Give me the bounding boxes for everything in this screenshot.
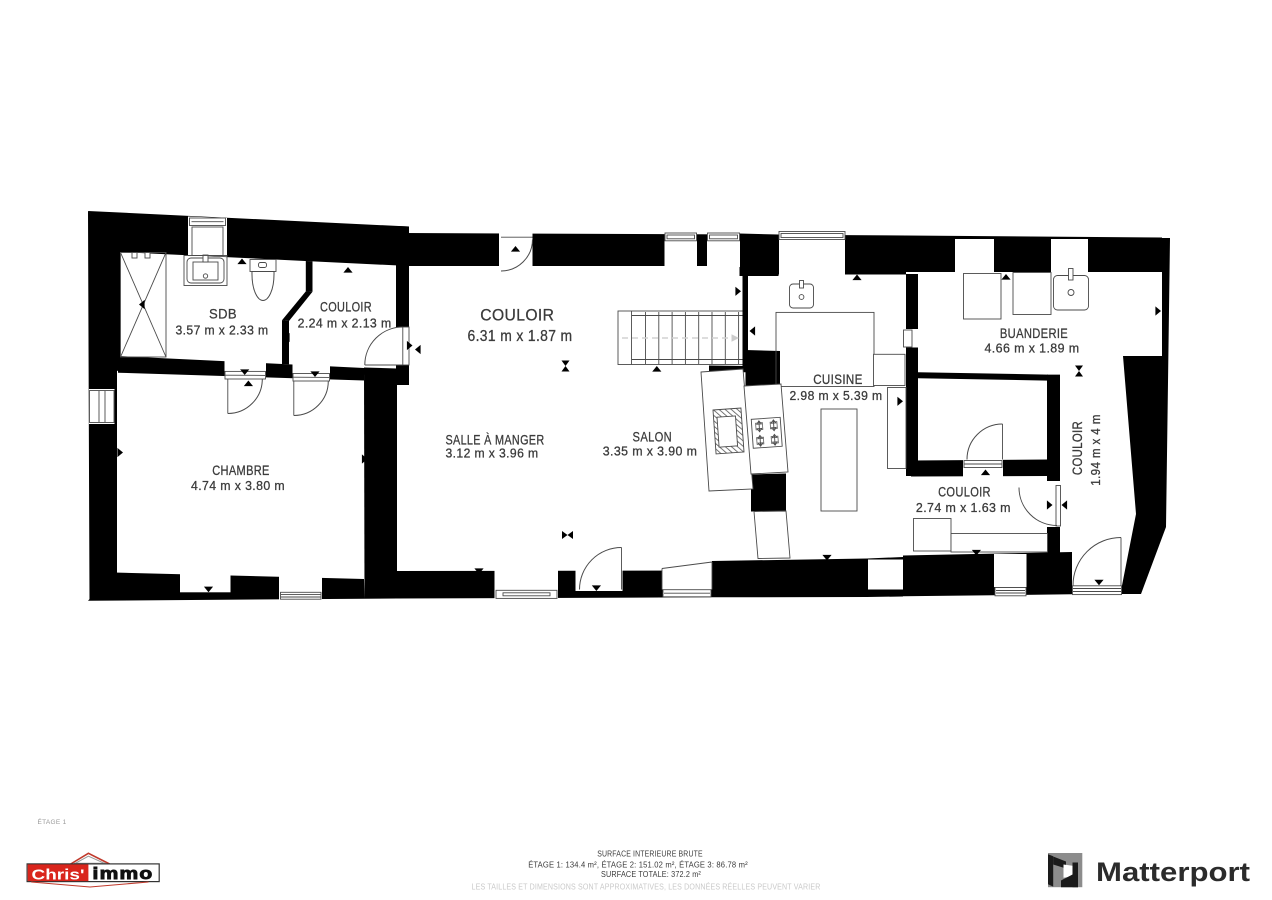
svg-text:COULOIR: COULOIR <box>938 485 991 500</box>
svg-text:ÉTAGE 1: ÉTAGE 1 <box>37 817 66 826</box>
svg-text:COULOIR: COULOIR <box>1070 421 1085 475</box>
svg-text:CHAMBRE: CHAMBRE <box>212 463 270 478</box>
svg-text:SALON: SALON <box>633 430 673 445</box>
svg-text:SDB: SDB <box>209 307 237 322</box>
svg-text:SALLE À MANGER: SALLE À MANGER <box>446 433 545 448</box>
svg-text:CUISINE: CUISINE <box>813 372 863 387</box>
svg-text:6.31 m x 1.87 m: 6.31 m x 1.87 m <box>468 328 573 345</box>
svg-text:2.24 m x 2.13 m: 2.24 m x 2.13 m <box>298 317 392 331</box>
svg-text:3.57 m x 2.33 m: 3.57 m x 2.33 m <box>176 324 269 338</box>
svg-text:4.66 m x 1.89 m: 4.66 m x 1.89 m <box>985 342 1080 356</box>
svg-text:3.12 m x 3.96 m: 3.12 m x 3.96 m <box>446 447 539 461</box>
svg-text:ÉTAGE 1: 134.4 m², ÉTAGE 2: 15: ÉTAGE 1: 134.4 m², ÉTAGE 2: 151.02 m², É… <box>528 860 748 870</box>
svg-text:immo: immo <box>93 864 154 883</box>
svg-text:4.74 m x 3.80 m: 4.74 m x 3.80 m <box>191 479 285 493</box>
svg-text:1.94 m x 4 m: 1.94 m x 4 m <box>1089 414 1103 486</box>
svg-text:COULOIR: COULOIR <box>320 300 372 315</box>
svg-text:3.35 m x 3.90 m: 3.35 m x 3.90 m <box>603 445 698 459</box>
svg-text:2.74 m x 1.63 m: 2.74 m x 1.63 m <box>916 501 1011 515</box>
svg-text:LES TAILLES ET DIMENSIONS SONT: LES TAILLES ET DIMENSIONS SONT APPROXIMA… <box>472 882 821 892</box>
svg-text:2.98 m x 5.39 m: 2.98 m x 5.39 m <box>790 389 883 403</box>
svg-text:BUANDERIE: BUANDERIE <box>1000 326 1068 341</box>
svg-text:SURFACE INTERIEURE BRUTE: SURFACE INTERIEURE BRUTE <box>597 849 703 859</box>
svg-text:SURFACE TOTALE: 372.2 m²: SURFACE TOTALE: 372.2 m² <box>601 869 701 879</box>
svg-text:Chris': Chris' <box>32 867 85 884</box>
svg-text:COULOIR: COULOIR <box>480 306 554 325</box>
svg-text:Matterport: Matterport <box>1096 857 1250 887</box>
